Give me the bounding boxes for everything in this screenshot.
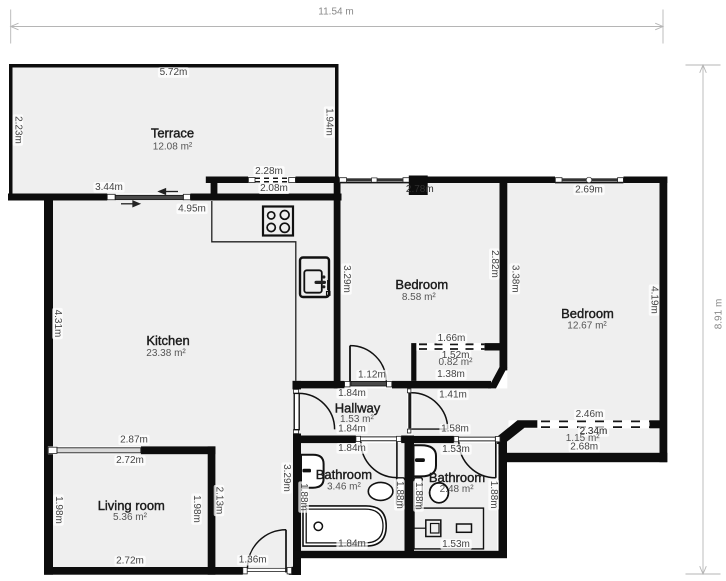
svg-text:2.72m: 2.72m [116, 455, 144, 466]
svg-text:3.46 m²: 3.46 m² [327, 482, 362, 493]
svg-text:3.29m: 3.29m [281, 464, 292, 492]
svg-text:2.87m: 2.87m [120, 435, 148, 446]
svg-text:Terrace: Terrace [151, 125, 194, 140]
svg-text:8.91 m: 8.91 m [714, 299, 725, 330]
svg-text:2.28m: 2.28m [255, 166, 283, 177]
svg-text:1.98m: 1.98m [191, 495, 202, 523]
svg-text:1.41m: 1.41m [439, 389, 467, 400]
svg-text:Living room: Living room [98, 498, 165, 513]
svg-text:12.67 m²: 12.67 m² [567, 321, 607, 332]
svg-text:12.08 m²: 12.08 m² [153, 142, 193, 153]
svg-text:2.13m: 2.13m [214, 487, 225, 515]
svg-text:2.46m: 2.46m [576, 409, 604, 420]
svg-text:1.94m: 1.94m [324, 108, 335, 136]
svg-text:8.58 m²: 8.58 m² [402, 292, 437, 303]
svg-text:1.66m: 1.66m [438, 333, 466, 344]
svg-text:3.44m: 3.44m [95, 182, 123, 193]
svg-text:1.88m: 1.88m [394, 481, 405, 509]
svg-text:1.98m: 1.98m [53, 496, 64, 524]
svg-text:5.72m: 5.72m [160, 67, 188, 78]
svg-text:Bedroom: Bedroom [395, 277, 448, 292]
svg-text:2.82m: 2.82m [489, 250, 500, 278]
svg-text:4.19m: 4.19m [649, 286, 660, 314]
svg-text:1.53m: 1.53m [442, 539, 470, 550]
svg-text:2.23m: 2.23m [12, 116, 23, 144]
svg-text:23.38 m²: 23.38 m² [146, 348, 186, 359]
svg-text:1.58m: 1.58m [441, 424, 469, 435]
svg-text:Bathroom: Bathroom [429, 470, 485, 485]
svg-text:2.69m: 2.69m [575, 185, 603, 196]
svg-text:3.29m: 3.29m [341, 265, 352, 293]
svg-text:Bedroom: Bedroom [561, 306, 614, 321]
svg-text:1.38m: 1.38m [437, 369, 465, 380]
svg-text:0.82 m²: 0.82 m² [439, 357, 474, 368]
svg-text:1.84m: 1.84m [338, 388, 366, 399]
svg-text:1.12m: 1.12m [358, 370, 386, 381]
svg-text:2.08m: 2.08m [260, 183, 288, 194]
svg-text:1.88m: 1.88m [488, 481, 499, 509]
svg-text:3.38m: 3.38m [509, 265, 520, 293]
svg-text:Bathroom: Bathroom [316, 467, 372, 482]
svg-text:1.88m: 1.88m [298, 483, 309, 511]
svg-text:1.84m: 1.84m [338, 443, 366, 454]
svg-text:4.31m: 4.31m [52, 310, 63, 338]
svg-text:Kitchen: Kitchen [146, 333, 189, 348]
svg-text:1.84m: 1.84m [338, 539, 366, 550]
svg-text:1.36m: 1.36m [239, 555, 267, 566]
svg-text:1.88m: 1.88m [413, 482, 424, 510]
svg-text:1.15 m²: 1.15 m² [566, 433, 601, 444]
svg-text:1.53 m²: 1.53 m² [340, 414, 375, 425]
svg-text:2.72m: 2.72m [116, 556, 144, 567]
svg-text:4.95m: 4.95m [178, 203, 206, 214]
svg-text:2.78m: 2.78m [406, 184, 434, 195]
svg-text:1.53m: 1.53m [442, 444, 470, 455]
svg-text:11.54 m: 11.54 m [318, 7, 353, 18]
svg-text:5.36 m²: 5.36 m² [113, 512, 148, 523]
